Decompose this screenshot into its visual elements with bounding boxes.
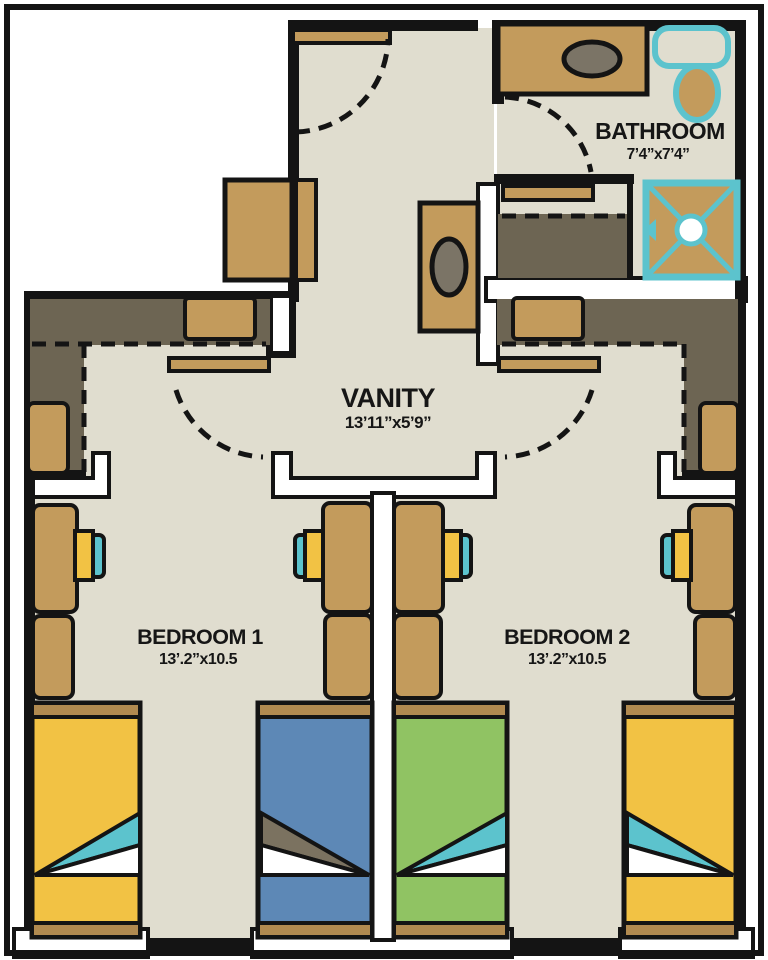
bed-footboard	[32, 923, 140, 937]
bed-footboard	[258, 923, 372, 937]
bedroom1-doorway-floor	[107, 474, 273, 498]
bed-headboard	[624, 703, 736, 717]
bed-headboard	[32, 703, 140, 717]
dresser	[394, 615, 441, 698]
bed-3	[394, 703, 507, 937]
bedroom2-door-leaf	[499, 358, 599, 371]
desk	[323, 503, 372, 612]
desk	[394, 503, 443, 612]
chair-seat	[305, 531, 323, 580]
vanity-sink-basin	[432, 239, 466, 295]
shower	[644, 183, 737, 277]
storage-unit-inner	[296, 180, 316, 280]
bedroom2-doorway-floor	[495, 474, 661, 498]
dresser	[33, 616, 73, 698]
bathroom-inner-wall	[494, 174, 634, 184]
vanity-dims: 13’11”x5’9”	[345, 413, 431, 432]
bed-4	[624, 703, 736, 937]
closet-right-drawers	[700, 403, 738, 473]
bedroom2-label: BEDROOM 2	[504, 625, 630, 649]
entry-door-leaf	[293, 30, 390, 43]
wall-cavity	[273, 298, 289, 351]
bathroom-closet	[498, 214, 627, 278]
bed-footboard	[394, 923, 507, 937]
dresser	[325, 615, 372, 698]
desk	[33, 505, 77, 612]
bed-blanket	[32, 703, 140, 937]
bed-headboard	[258, 703, 372, 717]
bedroom1-label: BEDROOM 1	[137, 625, 263, 649]
vanity-label: VANITY	[341, 383, 435, 413]
bed-footboard	[624, 923, 736, 937]
bed-2	[258, 703, 372, 937]
bed-1	[32, 703, 140, 937]
bathroom-shelf-bar	[503, 186, 593, 200]
closet-right-shelf	[513, 298, 583, 339]
entry-storage	[225, 180, 316, 280]
bedroom-divider-wall	[372, 493, 394, 940]
shower-drain	[677, 216, 705, 244]
closet-end-wall	[289, 291, 296, 358]
bathroom-label: BATHROOM	[595, 118, 725, 144]
floor-plan-page: BATHROOM 7’4”x7’4” VANITY 13’11”x5’9” BE…	[0, 0, 768, 960]
closet-left-shelf	[185, 298, 255, 339]
vanity-sink	[420, 203, 478, 331]
floor-plan: BATHROOM 7’4”x7’4” VANITY 13’11”x5’9” BE…	[0, 0, 768, 960]
chair-seat	[673, 531, 691, 580]
bedroom1-door-leaf	[169, 358, 269, 371]
dresser	[695, 616, 735, 698]
entry-corridor-floor	[296, 28, 494, 188]
bathroom-dims: 7’4”x7’4”	[627, 146, 690, 163]
vanity-sink-wall	[478, 184, 498, 364]
closet-left-drawers	[28, 403, 68, 473]
chair-seat	[75, 531, 93, 580]
desk	[689, 505, 735, 612]
toilet-bowl	[676, 66, 718, 120]
bedroom1-dims: 13’.2”x10.5	[159, 651, 238, 668]
storage-unit-outer	[225, 180, 292, 280]
shower-side-wall	[627, 178, 633, 280]
bathroom-sink-basin	[564, 42, 620, 76]
chair-seat	[443, 531, 461, 580]
bedroom2-dims: 13’.2”x10.5	[528, 651, 607, 668]
toilet-tank	[655, 28, 728, 66]
bed-blanket	[394, 703, 507, 937]
bed-headboard	[394, 703, 507, 717]
